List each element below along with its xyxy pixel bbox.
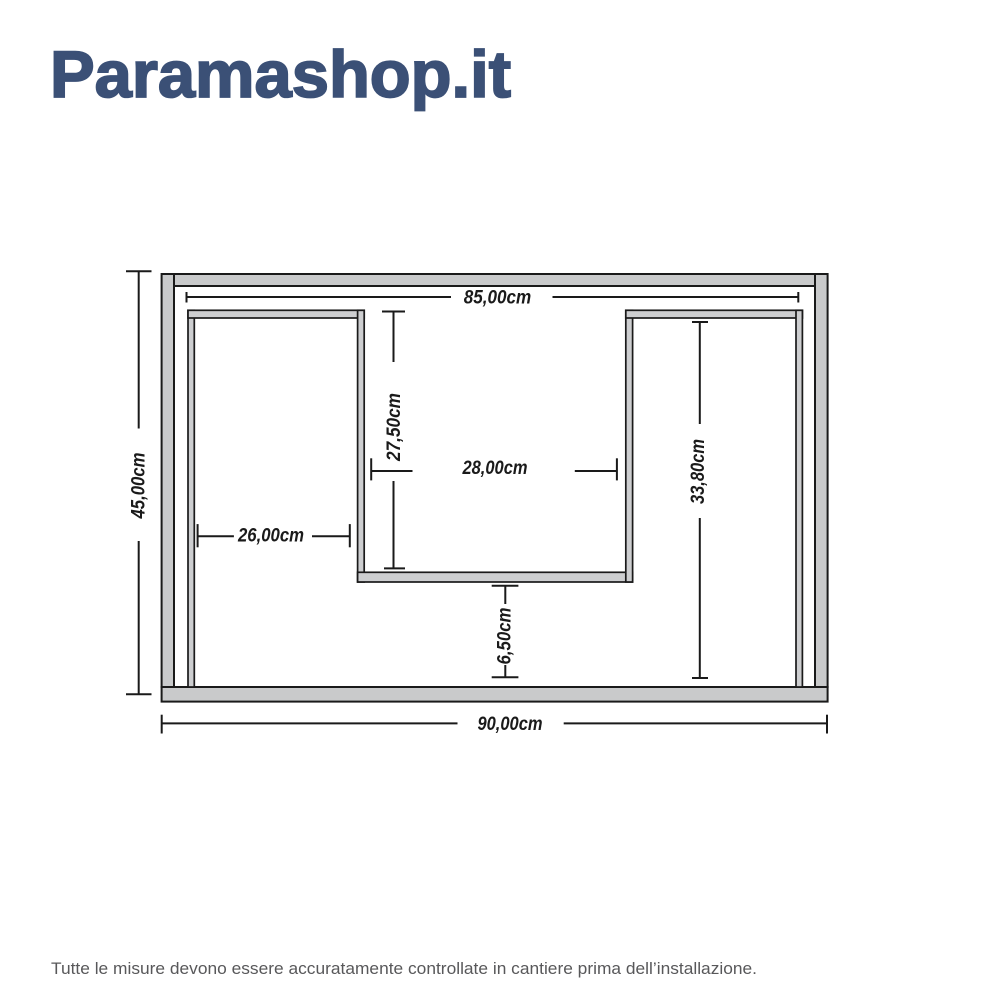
svg-text:85,00cm: 85,00cm: [464, 288, 532, 309]
svg-text:28,00cm: 28,00cm: [462, 458, 528, 479]
svg-text:Paramashop.it: Paramashop.it: [50, 37, 511, 111]
svg-text:Tutte le misure devono essere: Tutte le misure devono essere accuratame…: [51, 959, 757, 978]
svg-text:26,00cm: 26,00cm: [237, 526, 304, 547]
svg-text:27,50cm: 27,50cm: [384, 393, 405, 462]
svg-text:45,00cm: 45,00cm: [129, 452, 150, 519]
svg-text:90,00cm: 90,00cm: [478, 714, 543, 735]
svg-text:33,80cm: 33,80cm: [688, 439, 709, 504]
svg-text:6,50cm: 6,50cm: [495, 607, 516, 664]
